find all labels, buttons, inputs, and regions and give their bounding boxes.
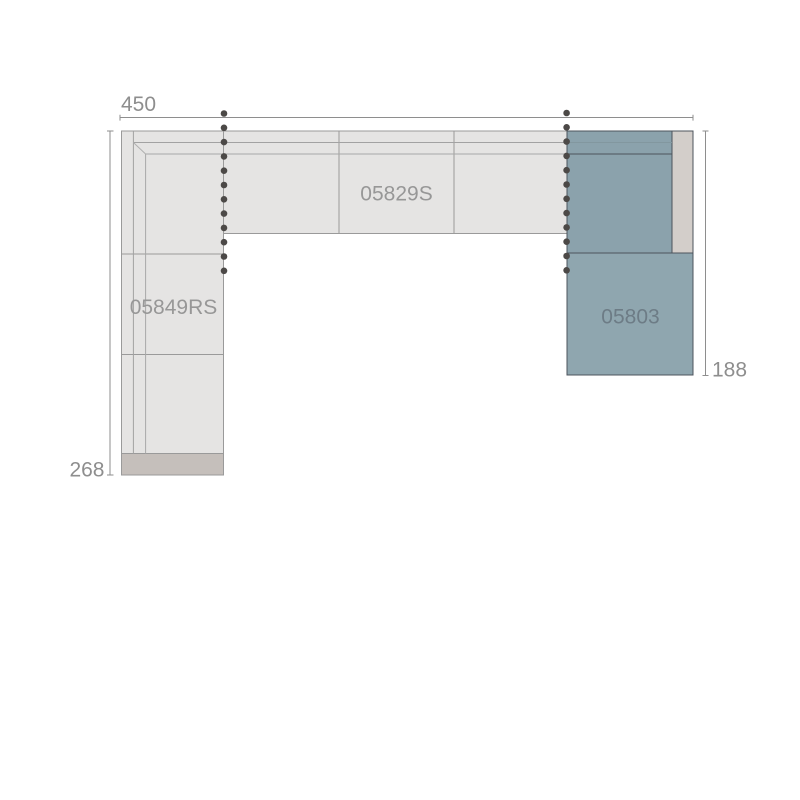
svg-text:05829S: 05829S	[360, 183, 432, 206]
svg-text:05803: 05803	[601, 306, 659, 329]
svg-text:05849RS: 05849RS	[130, 296, 218, 319]
svg-text:450: 450	[121, 93, 156, 116]
svg-text:268: 268	[69, 459, 104, 482]
svg-text:188: 188	[712, 359, 747, 382]
